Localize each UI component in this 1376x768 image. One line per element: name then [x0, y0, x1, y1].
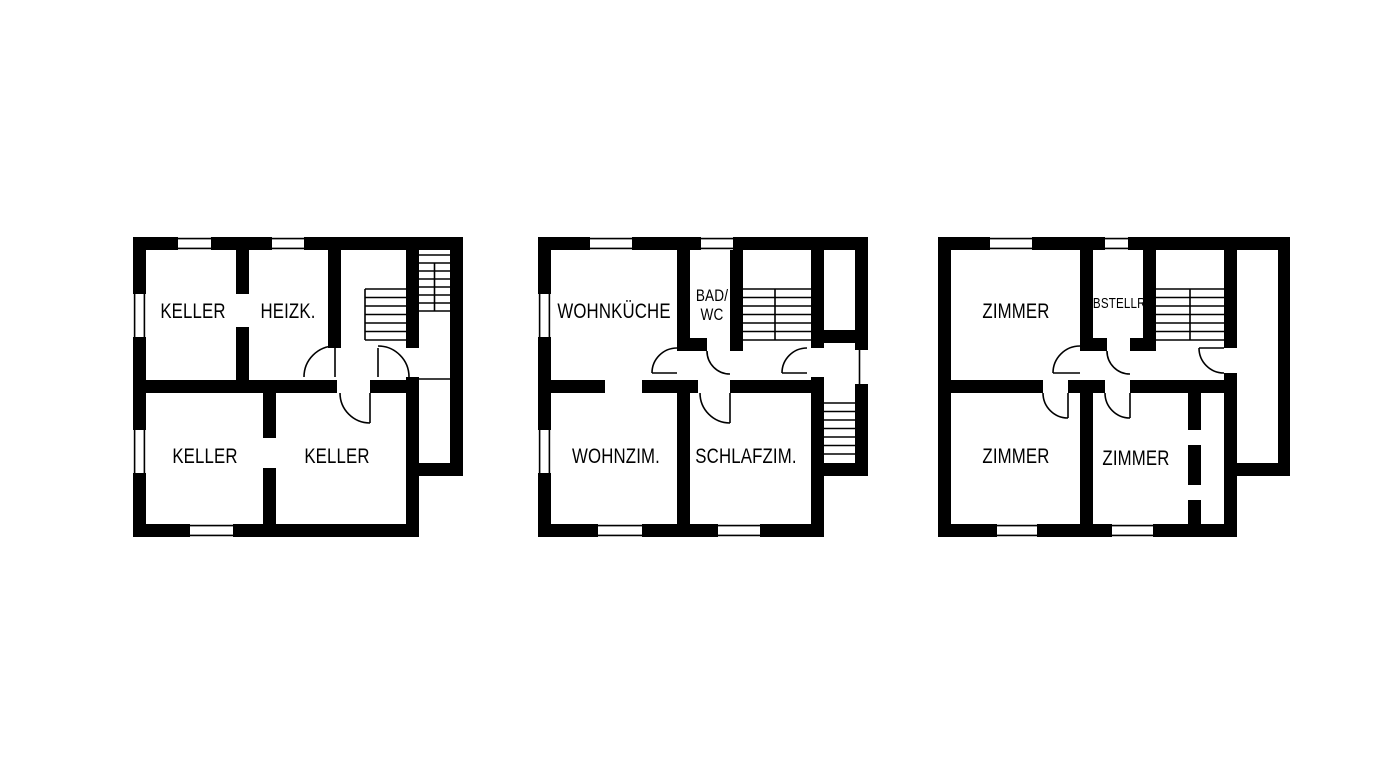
- room-label-bad-line1: BAD/: [696, 287, 729, 306]
- window: [718, 524, 760, 537]
- door-schlafzim: [700, 393, 730, 423]
- room-label-keller-nw: KELLER: [160, 300, 225, 323]
- interior-staircase: [743, 289, 811, 340]
- door-abstellr: [1107, 351, 1130, 374]
- room-label-keller-sw: KELLER: [172, 445, 237, 468]
- window: [598, 524, 642, 537]
- door-keller-se: [340, 393, 370, 423]
- room-label-schlafzim: SCHLAFZIM.: [695, 445, 796, 468]
- door-zimmer-nw: [1053, 346, 1080, 373]
- door-corridor: [1199, 348, 1224, 373]
- room-label-zimmer-nw: ZIMMER: [982, 300, 1049, 323]
- room-label-heizk: HEIZK.: [260, 300, 315, 323]
- ground-floorplan: WOHNKÜCHE BAD/ WC WOHNZIM. SCHLAFZIM.: [538, 237, 868, 537]
- interior-staircase: [365, 289, 406, 340]
- room-label-wohnkueche: WOHNKÜCHE: [557, 300, 670, 323]
- window: [538, 294, 551, 337]
- door-exit-right: [782, 348, 807, 373]
- window: [997, 524, 1037, 537]
- door-bad-wc: [707, 351, 730, 374]
- window: [538, 430, 551, 473]
- door-hall-left: [304, 346, 335, 377]
- walls: [133, 237, 463, 537]
- window: [590, 237, 632, 250]
- room-label-zimmer-se: ZIMMER: [1102, 447, 1169, 470]
- interior-staircase: [1156, 289, 1224, 340]
- exterior-staircase: [824, 350, 860, 454]
- window: [1105, 237, 1128, 250]
- room-label-wohnzim: WOHNZIM.: [572, 445, 660, 468]
- window: [133, 294, 146, 337]
- door-wohnkueche: [652, 348, 677, 373]
- window: [272, 237, 304, 250]
- window: [1112, 524, 1153, 537]
- door-exit-right: [378, 346, 409, 377]
- walls: [538, 237, 868, 537]
- room-label-keller-se: KELLER: [304, 445, 369, 468]
- door-zimmer-sw: [1043, 393, 1068, 418]
- room-label-zimmer-sw: ZIMMER: [982, 445, 1049, 468]
- window: [190, 524, 233, 537]
- room-label-abstellr: ABSTELLR.: [1085, 295, 1149, 312]
- basement-floorplan: KELLER HEIZK. KELLER KELLER: [133, 237, 463, 537]
- door-zimmer-se: [1105, 393, 1130, 418]
- window: [701, 237, 733, 250]
- window: [178, 237, 211, 250]
- window: [133, 430, 146, 473]
- window: [990, 237, 1032, 250]
- walls: [938, 237, 1290, 537]
- exterior-staircase: [419, 255, 450, 379]
- floorplan-sheet: KELLER HEIZK. KELLER KELLER: [0, 0, 1376, 768]
- upper-floorplan: ZIMMER ABSTELLR. ZIMMER ZIMMER: [938, 237, 1290, 537]
- room-label-bad-line2: WC: [701, 306, 724, 325]
